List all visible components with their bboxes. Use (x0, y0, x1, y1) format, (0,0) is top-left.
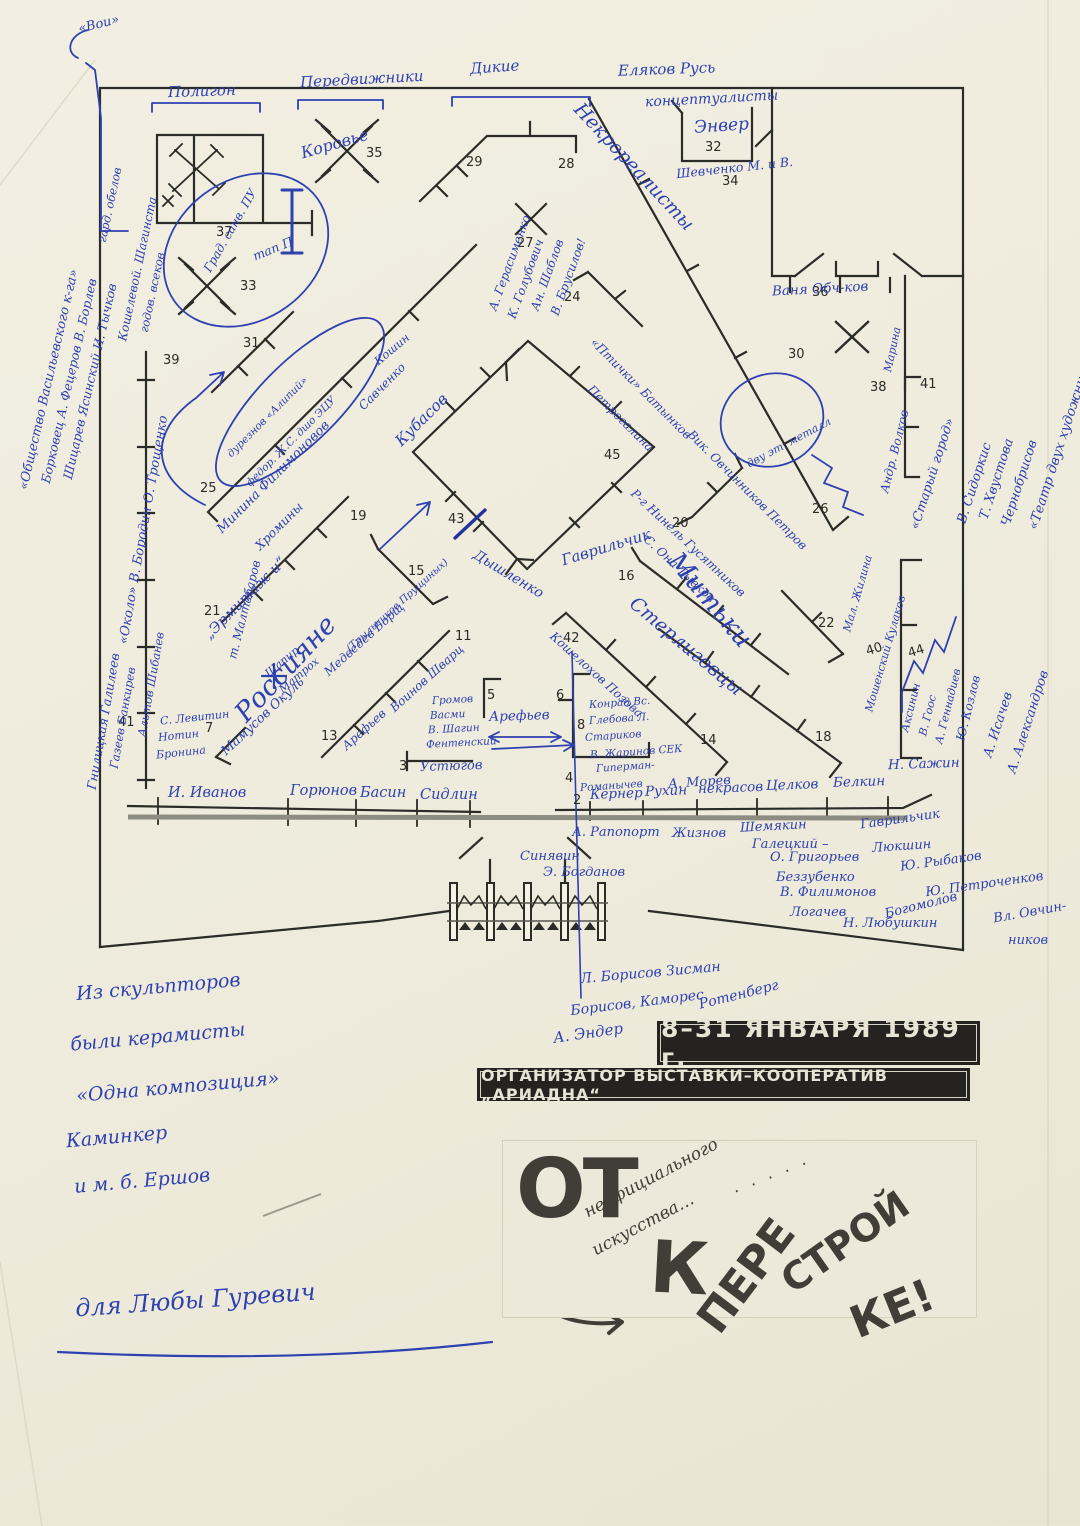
artist-label: ников (1008, 934, 1048, 947)
dates-banner-text: 8–31 ЯНВАРЯ 1989 г. (660, 1024, 977, 1062)
artist-note: Громов (432, 694, 474, 707)
room-number: 35 (366, 147, 383, 160)
artist-label: А. Рапопорт (572, 826, 660, 839)
organizer-banner-text: ОРГАНИЗАТОР ВЫСТАВКИ–КООПЕРАТИВ „АРИАДНА… (480, 1071, 967, 1098)
room-number: 3 (399, 760, 407, 773)
room-number: 34 (722, 175, 739, 188)
dates-banner: 8–31 ЯНВАРЯ 1989 г. (657, 1021, 980, 1065)
room-number: 8 (577, 719, 585, 732)
room-number: 28 (558, 158, 575, 171)
room-number: 41 (920, 378, 937, 391)
room-number: 26 (812, 503, 829, 516)
artist-label: Рухин (645, 784, 688, 799)
group-label-enver: Энвер (693, 116, 749, 137)
artist-note: Васми (430, 709, 466, 721)
room-number: 29 (466, 156, 483, 169)
artist-label: О. Григорьев (770, 851, 859, 864)
room-number: 39 (163, 354, 180, 367)
artist-note: В. Шагин (428, 723, 480, 736)
room-number: 6 (556, 689, 564, 702)
organizer-banner: ОРГАНИЗАТОР ВЫСТАВКИ–КООПЕРАТИВ „АРИАДНА… (477, 1068, 970, 1101)
room-number: 22 (818, 617, 835, 630)
room-number: 30 (788, 348, 805, 361)
artist-label: Люкшин (872, 838, 932, 855)
section-label-poligon: Полигон (168, 83, 236, 100)
exhibition-logo: ОТ неофициального искусства… · · · · · К… (502, 1140, 977, 1318)
room-number: 4 (565, 772, 573, 785)
room-number: 38 (870, 381, 887, 394)
entrance-turnstiles-icon (447, 883, 608, 940)
room-number: 33 (240, 280, 257, 293)
artist-label: Целков (766, 778, 819, 793)
artist-label: Горюнов (290, 784, 357, 799)
artist-label: И. Иванов (168, 786, 246, 801)
group-label-dikie: Дикие (470, 58, 520, 76)
room-number: 5 (487, 689, 495, 702)
room-number: 19 (350, 510, 367, 523)
artist-label: Белкин (833, 775, 886, 790)
artist-label: Шемякин (740, 818, 807, 834)
scanned-floorplan-document: { "t": { "poligon":"Полигон","peredvizhn… (0, 0, 1080, 1526)
artist-label: Синявин (520, 850, 580, 863)
room-number: 25 (200, 482, 217, 495)
group-label-elakov-rus: Еляков Русь (618, 60, 716, 78)
room-number: 43 (448, 513, 465, 526)
room-number: 31 (243, 337, 260, 350)
artist-label: некрасов (698, 781, 764, 797)
room-number: 2 (573, 794, 581, 807)
room-number: 18 (815, 731, 832, 744)
artist-label: Беззубенко (776, 871, 855, 884)
artist-label: Сидлин (420, 788, 478, 803)
room-number: 32 (705, 141, 722, 154)
pencil-mark (263, 1194, 321, 1216)
room-number: 14 (700, 734, 717, 747)
artist-label: Басин (360, 786, 406, 801)
artist-label: Логачев (790, 906, 846, 919)
artist-note: Устюгов (420, 759, 483, 774)
room-number: 16 (618, 570, 635, 583)
artist-label: Кернер (590, 787, 643, 802)
artist-label: Жизнов (672, 827, 726, 840)
logo-dotted-trail: · · · · · (731, 1153, 814, 1201)
room-number: 13 (321, 730, 338, 743)
artist-label: Н. Любушкин (843, 917, 937, 930)
artist-label: Э. Богданов (543, 866, 625, 879)
artist-label-arefiev: Арефьев (489, 709, 550, 725)
artist-label: В. Филимонов (780, 886, 876, 899)
room-number: 45 (604, 449, 621, 462)
artist-label: Н. Сажин (888, 757, 960, 773)
room-number: 7 (205, 722, 213, 735)
